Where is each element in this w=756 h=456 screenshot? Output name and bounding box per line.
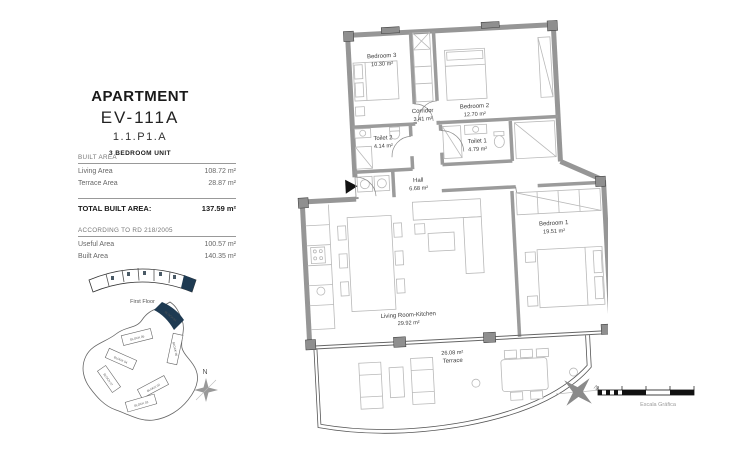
total-built-area-row: TOTAL BUILT AREA: 137.59 m² [78, 198, 236, 213]
scale-bar: Escala Gráfica [596, 382, 700, 412]
room-area-toilet1: 4.79 m² [468, 146, 487, 153]
page-title: APARTMENT [70, 88, 210, 105]
rd-heading: ACCORDING TO RD 218/2005 [78, 227, 236, 237]
row-label: Terrace Area [78, 180, 118, 187]
row-value: 100.57 m² [204, 241, 236, 248]
room-label-bedroom2: Bedroom 2 [460, 103, 490, 111]
row-value: 108.72 m² [204, 168, 236, 175]
keyplan-first-floor [85, 254, 200, 298]
room-label-bedroom1: Bedroom 1 [539, 220, 569, 228]
room-label-hall: Hall [413, 178, 424, 185]
table-row: Living Area 108.72 m² [78, 164, 236, 176]
row-label: Living Area [78, 168, 113, 175]
room-area-living: 29.92 m² [398, 320, 420, 327]
built-area-heading: BUILT AREA [78, 154, 236, 164]
wardrobe-shaft [413, 32, 434, 102]
floor-plan-sheet: APARTMENT EV-111A 1.1.P1.A 3 BEDROOM UNI… [0, 0, 756, 456]
title-block: APARTMENT EV-111A 1.1.P1.A 3 BEDROOM UNI… [70, 88, 210, 157]
site-plan: BLOCK 01 BLOCK 05 BLOCK 06 BLOCK 04 BLOC… [78, 298, 226, 426]
unit-reference: 1.1.P1.A [70, 131, 210, 143]
room-label-bedroom3: Bedroom 3 [367, 53, 397, 61]
sofa-group [412, 199, 484, 276]
dining-table [337, 215, 406, 312]
room-label-toilet1: Toilet 1 [468, 138, 488, 145]
room-label-living: Living Room-Kitchen [381, 311, 437, 320]
row-value: 28.87 m² [208, 180, 236, 187]
room-label-corridor: Corridor [412, 108, 434, 115]
terrace-furniture [358, 347, 578, 409]
room-area-bedroom1: 19.51 m² [543, 228, 565, 235]
bedroom1-furniture [516, 188, 606, 308]
room-area-bedroom3: 10.30 m² [371, 61, 393, 68]
room-area-corridor: 3.41 m² [413, 116, 432, 123]
bedroom3-bed [353, 61, 400, 116]
room-area-bedroom2: 12.70 m² [464, 111, 486, 118]
area-table: BUILT AREA Living Area 108.72 m² Terrace… [78, 154, 236, 261]
north-label: N [202, 369, 207, 376]
row-label: Useful Area [78, 241, 114, 248]
total-value: 137.59 m² [202, 204, 236, 213]
row-value: 140.35 m² [204, 253, 236, 260]
terrace-label: Terrace [443, 358, 464, 365]
table-row: Useful Area 100.57 m² [78, 237, 236, 249]
terrace-area: 26.08 m² [441, 350, 463, 357]
total-label: TOTAL BUILT AREA: [78, 204, 151, 213]
room-area-toilet2: 4.14 m² [374, 143, 393, 150]
compass-star-icon [556, 370, 600, 414]
compass: N [556, 370, 600, 414]
room-label-toilet2: Toilet 2 [373, 135, 393, 142]
scale-bar-label: Escala Gráfica [640, 402, 677, 408]
room-area-hall: 6.68 m² [409, 185, 428, 192]
unit-code: EV-111A [70, 108, 210, 128]
table-row: Terrace Area 28.87 m² [78, 176, 236, 188]
